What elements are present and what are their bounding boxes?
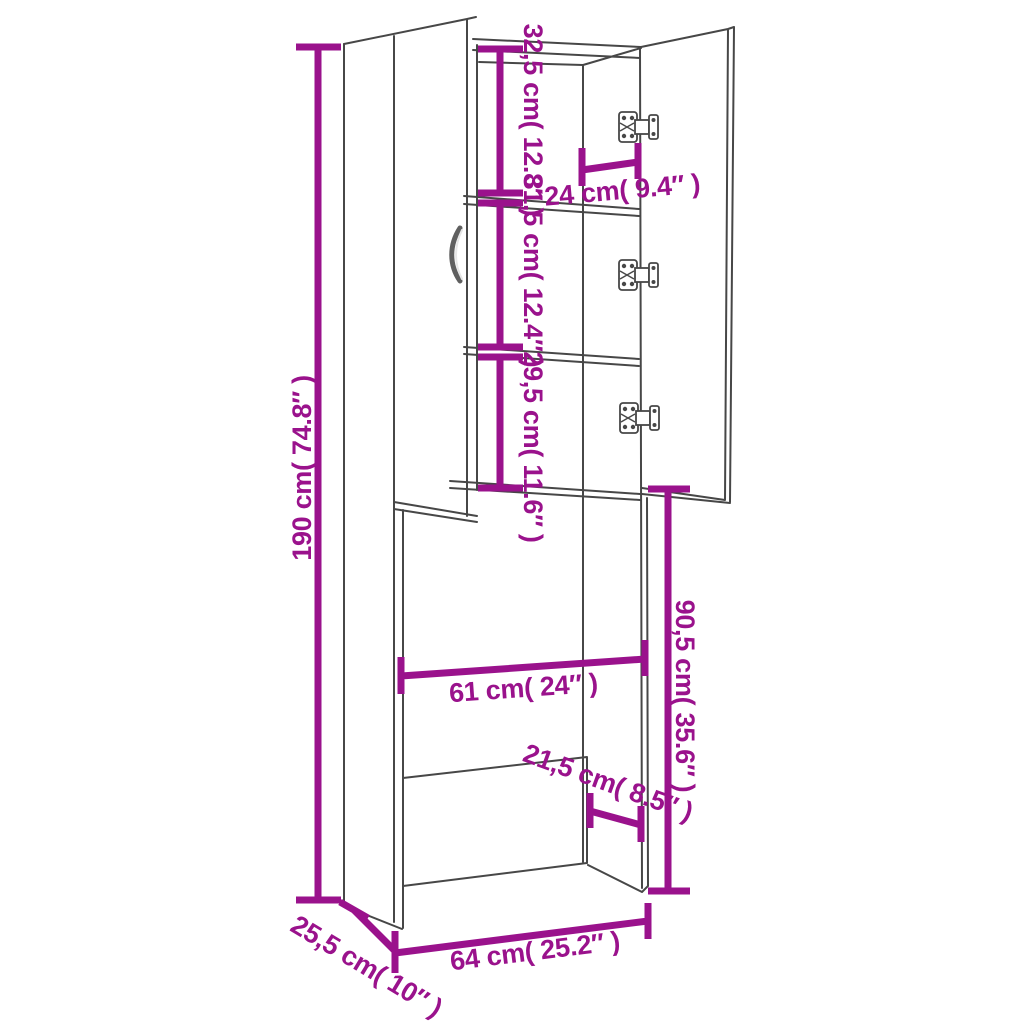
dim-line-top-shelf-spacing	[478, 49, 523, 193]
dimension-annotations: 190 cm( 74.8″ ) 32,5 cm( 12.8″ ) 31,5 cm…	[286, 24, 702, 1024]
hinge-icon	[619, 112, 658, 142]
dim-label-opening-height: 90,5 cm( 35.6″ )	[670, 600, 700, 793]
dim-line-bottom-shelf-spacing	[478, 357, 523, 488]
diagram-canvas: 190 cm( 74.8″ ) 32,5 cm( 12.8″ ) 31,5 cm…	[0, 0, 1024, 1024]
dim-label-total-height: 190 cm( 74.8″ )	[287, 375, 317, 561]
dim-label-bottom-shelf-spacing: 29,5 cm( 11.6″ )	[518, 351, 548, 542]
left-side-panel	[344, 36, 403, 929]
hinge-icon	[619, 260, 658, 290]
hinge-icon	[620, 403, 659, 433]
dim-line-middle-shelf-spacing	[478, 203, 523, 347]
cabinet-dimension-diagram: 190 cm( 74.8″ ) 32,5 cm( 12.8″ ) 31,5 cm…	[0, 0, 1024, 1024]
dim-label-middle-shelf-spacing: 31,5 cm( 12.4″ )	[518, 175, 548, 368]
dim-label-interior-depth-top: 24 cm( 9.4″ )	[543, 168, 701, 211]
